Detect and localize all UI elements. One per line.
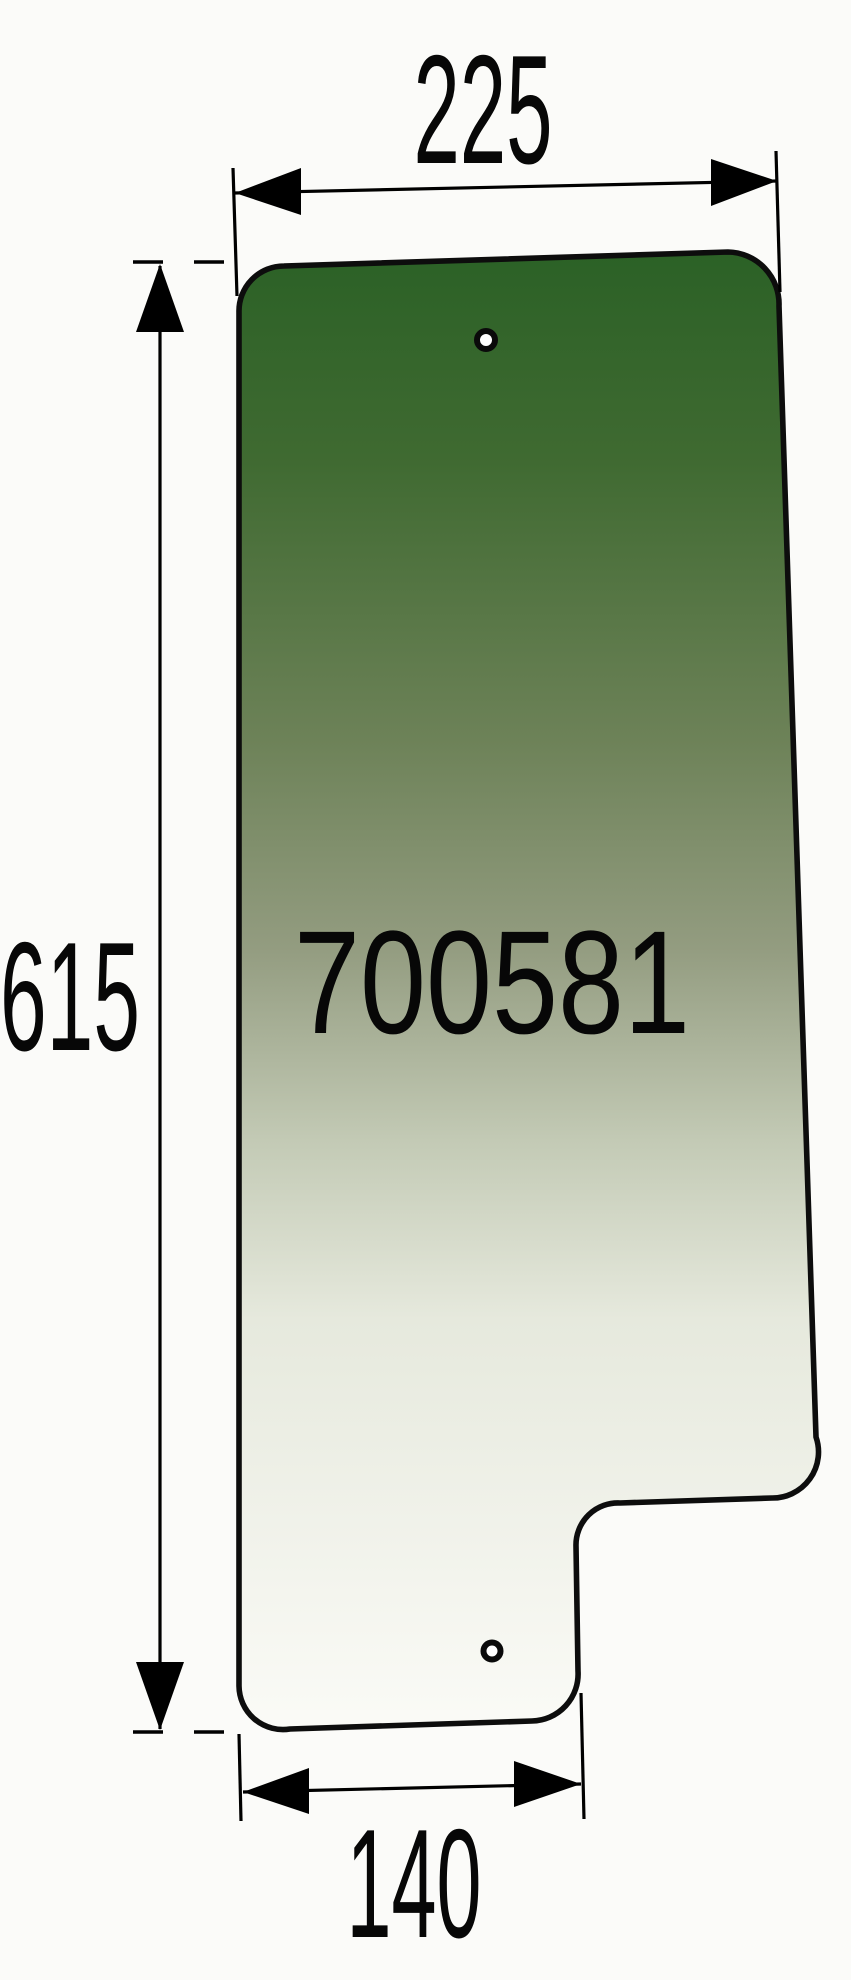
height-dimension: 615 (0, 262, 243, 1732)
top-width-extension-line-right (776, 151, 780, 292)
bottom-width-extension-line-right (581, 1693, 584, 1819)
arrow-right-icon (514, 1761, 581, 1807)
arrow-left-icon (243, 1768, 309, 1814)
part-number-label: 700581 (294, 901, 690, 1065)
top-width-extension-line-left (233, 168, 237, 296)
arrow-left-icon (235, 168, 301, 215)
arrow-down-icon (136, 1662, 184, 1730)
technical-drawing-page: 225 615 140 700581 (0, 0, 851, 1980)
arrow-up-icon (136, 264, 184, 332)
bottom-width-label: 140 (347, 1797, 482, 1970)
bottom-mounting-hole-icon (484, 1643, 501, 1660)
top-width-label: 225 (414, 23, 553, 196)
height-label: 615 (0, 910, 140, 1083)
glass-part-diagram: 225 615 140 700581 (0, 0, 851, 1980)
top-mounting-hole-icon (477, 331, 495, 349)
arrow-right-icon (711, 159, 777, 206)
bottom-width-dimension: 140 (239, 1693, 584, 1970)
bottom-width-extension-line-left (239, 1734, 241, 1821)
